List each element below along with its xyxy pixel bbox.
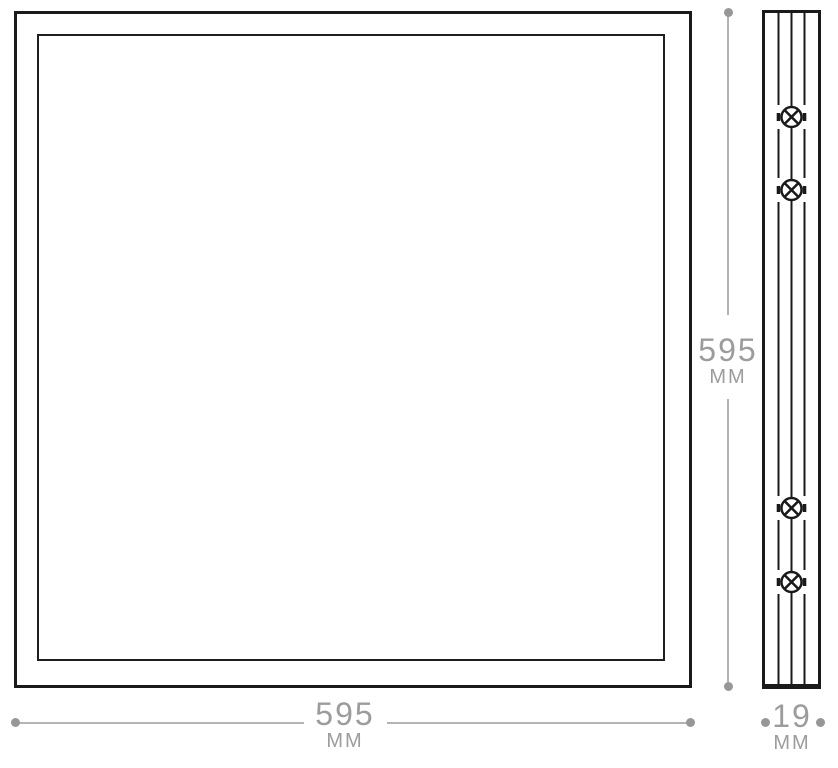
height-dimension-line	[727, 399, 729, 686]
dimension-endpoint-dot	[724, 8, 733, 17]
screw-head-icon	[770, 496, 813, 520]
width-value: 595	[245, 698, 445, 730]
screw-head-icon	[770, 178, 813, 202]
panel-dimension-drawing: 595 MM 595 MM 19 MM	[0, 0, 838, 768]
screw-head-icon	[770, 105, 813, 129]
screw-head-icon	[770, 570, 813, 594]
depth-unit: MM	[692, 733, 838, 753]
height-dimension-line	[727, 12, 729, 315]
width-unit: MM	[245, 731, 445, 751]
height-unit: MM	[628, 367, 828, 387]
dimension-endpoint-dot	[11, 718, 20, 727]
height-dimension-label: 595 MM	[628, 334, 828, 387]
dimension-endpoint-dot	[724, 682, 733, 691]
height-value: 595	[628, 334, 828, 366]
depth-dimension-label: 19 MM	[692, 700, 838, 753]
depth-value: 19	[692, 700, 838, 732]
front-view-inner-frame	[37, 34, 665, 661]
width-dimension-label: 595 MM	[245, 698, 445, 751]
